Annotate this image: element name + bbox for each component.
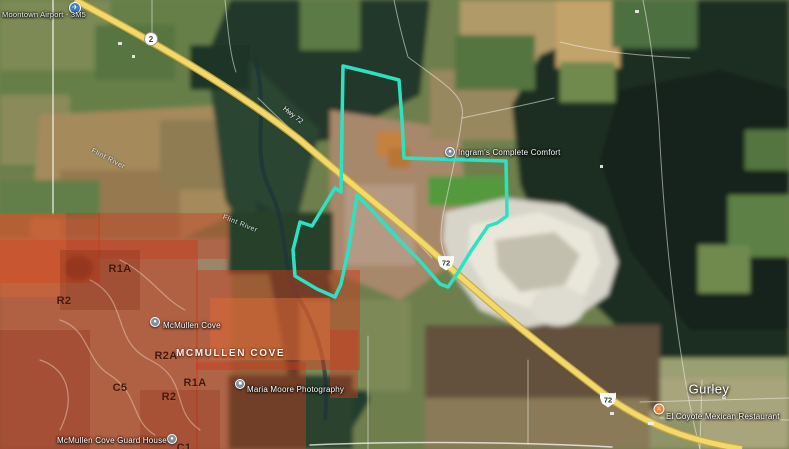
place-icon: ●	[448, 149, 452, 155]
route-shield-72-b-number: 72	[604, 396, 612, 405]
poi-label-el-coyote-mexican-restaurant[interactable]: El Coyote Mexican Restaurant	[666, 412, 780, 421]
camera-pin-icon[interactable]: ■	[235, 379, 245, 389]
mcmullen-cove-pin-icon[interactable]: ●	[150, 317, 160, 327]
place-icon: ●	[170, 436, 174, 442]
neighborhood-label-mcmullen-cove: MCMULLEN COVE	[176, 348, 285, 359]
poi-label-mcmullen-cove-guard-house[interactable]: McMullen Cove Guard House	[57, 436, 167, 445]
poi-label-moontown-airport[interactable]: Moontown Airport - 3M5	[2, 10, 86, 19]
zoning-label-r1a-2: R1A	[184, 377, 207, 389]
place-icon: ●	[153, 319, 157, 325]
restaurant-pin-icon[interactable]: ⚔	[654, 404, 665, 415]
camera-icon: ■	[238, 381, 242, 387]
town-label-gurley[interactable]: Gurley	[689, 382, 730, 397]
poi-label-ingrams-complete-comfort[interactable]: Ingram's Complete Comfort	[458, 148, 561, 157]
ingrams-pin-icon[interactable]: ●	[445, 147, 455, 157]
zoning-label-r2a: R2A	[155, 350, 178, 362]
satellite-map[interactable]: ✈ ● ● ■ ● ⚔ 2 72 72 Moontown Airport - 3…	[0, 0, 789, 449]
zoning-label-r2-2: R2	[162, 391, 177, 403]
poi-label-mcmullen-cove[interactable]: McMullen Cove	[163, 321, 221, 330]
guard-house-pin-icon[interactable]: ●	[167, 434, 177, 444]
poi-label-maria-moore-photography[interactable]: Maria Moore Photography	[247, 385, 344, 394]
route-shield-2-number: 2	[149, 35, 153, 44]
route-shield-72-a-number: 72	[442, 259, 450, 268]
fork-knife-icon: ⚔	[656, 406, 661, 412]
zoning-label-c1: C1	[177, 442, 192, 449]
zoning-label-c5: C5	[113, 382, 128, 394]
zoning-label-r1a: R1A	[109, 263, 132, 275]
route-shield-2: 2	[144, 32, 158, 46]
zoning-label-r2: R2	[57, 295, 72, 307]
